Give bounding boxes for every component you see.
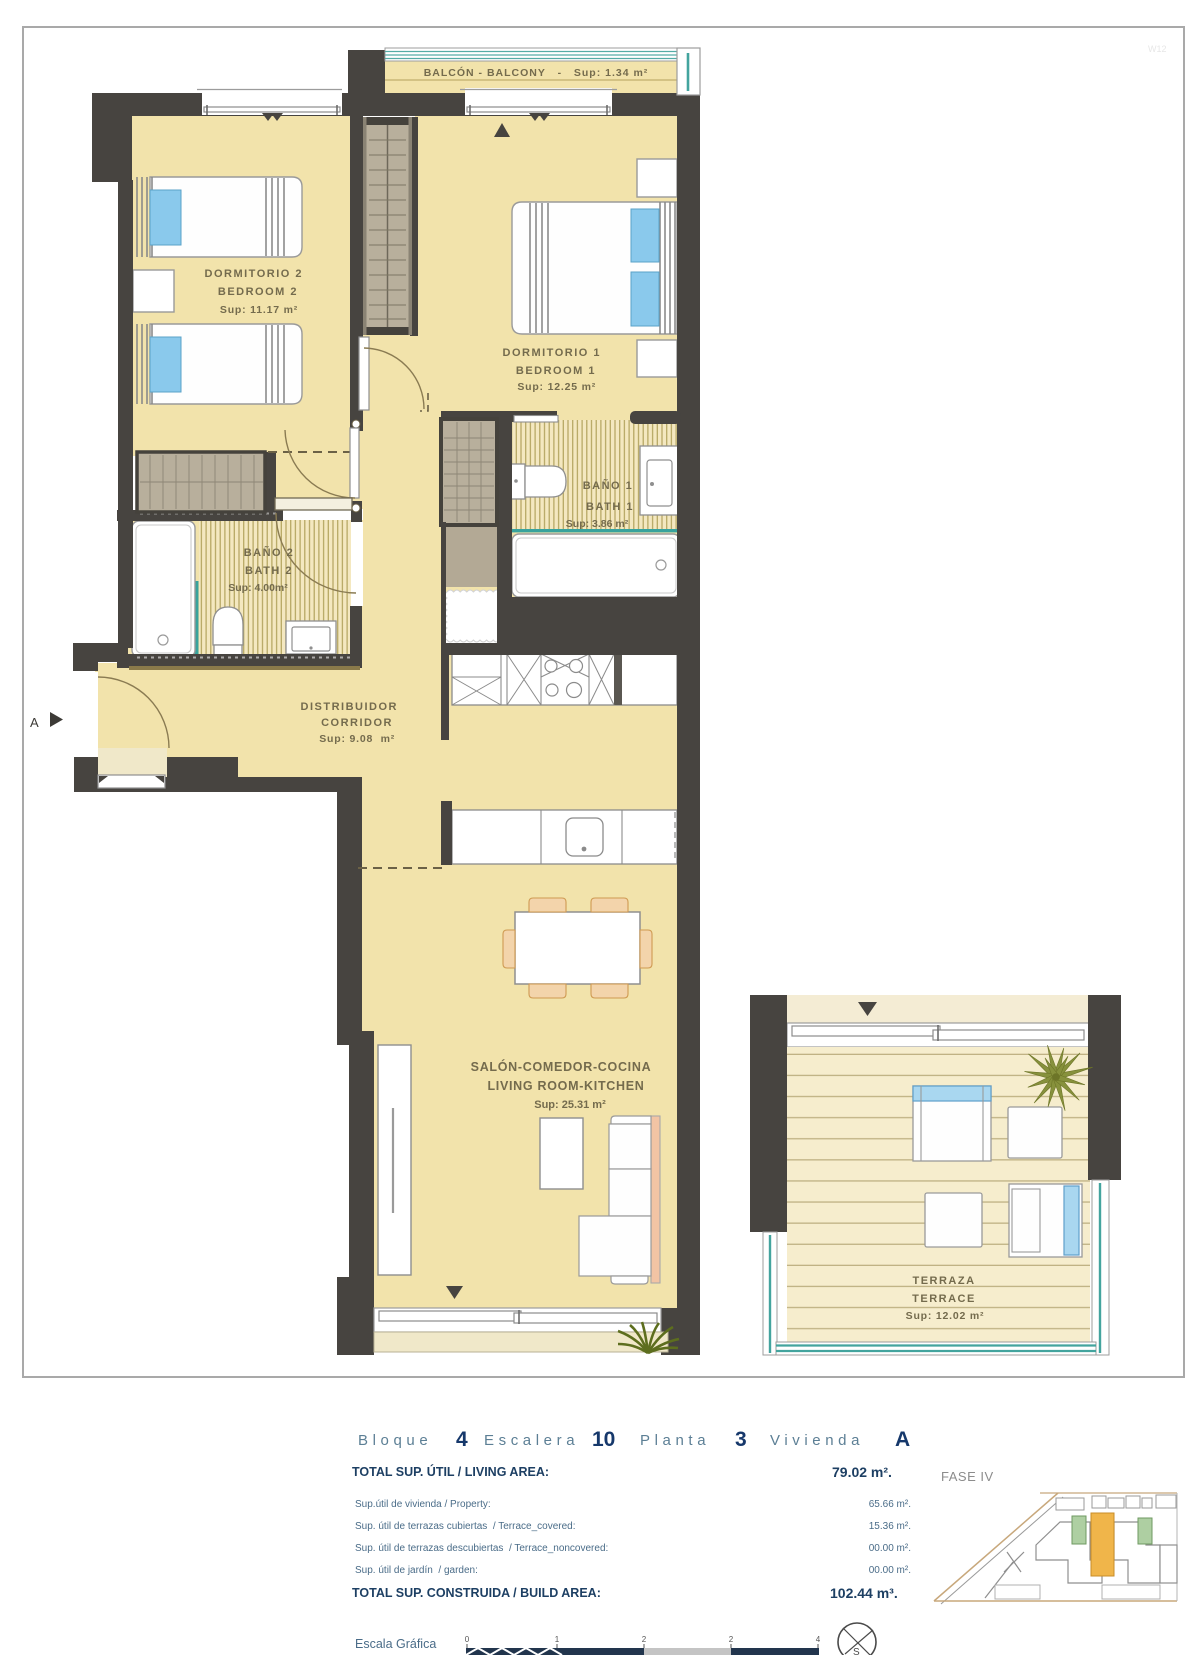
svg-text:BEDROOM 1: BEDROOM 1 [516, 365, 596, 377]
svg-text:2: 2 [642, 1635, 647, 1644]
svg-text:A: A [30, 715, 39, 730]
svg-text:DORMITORIO 1: DORMITORIO 1 [503, 347, 601, 359]
svg-text:00.00 m².: 00.00 m². [869, 1565, 911, 1576]
svg-text:BAÑO 1: BAÑO 1 [583, 479, 634, 492]
svg-text:Sup: 12.02 m²: Sup: 12.02 m² [906, 1310, 985, 1322]
svg-text:BATH 1: BATH 1 [586, 501, 634, 513]
svg-text:4: 4 [816, 1635, 821, 1644]
svg-text:BEDROOM 2: BEDROOM 2 [218, 286, 298, 298]
svg-text:Sup: 9.08 m²: Sup: 9.08 m² [319, 733, 395, 745]
svg-text:BATH 2: BATH 2 [245, 565, 293, 577]
svg-text:Vivienda: Vivienda [770, 1432, 864, 1449]
svg-text:Planta: Planta [640, 1432, 710, 1449]
svg-text:Sup. útil de jardín / garden:: Sup. útil de jardín / garden: [355, 1565, 478, 1576]
svg-text:BAÑO 2: BAÑO 2 [244, 546, 295, 559]
svg-text:FASE IV: FASE IV [941, 1469, 994, 1484]
svg-text:Sup. útil de terrazas cubierta: Sup. útil de terrazas cubiertas / Terrac… [355, 1521, 575, 1532]
svg-text:Sup: 11.17 m²: Sup: 11.17 m² [220, 304, 298, 316]
svg-text:SALÓN-COMEDOR-COCINA: SALÓN-COMEDOR-COCINA [471, 1059, 652, 1074]
svg-text:102.44 m³.: 102.44 m³. [830, 1585, 898, 1601]
svg-text:65.66 m².: 65.66 m². [869, 1499, 911, 1510]
svg-text:LIVING ROOM-KITCHEN: LIVING ROOM-KITCHEN [487, 1079, 644, 1093]
svg-text:DISTRIBUIDOR: DISTRIBUIDOR [301, 701, 398, 713]
svg-text:TOTAL SUP. ÚTIL / LIVING AREA:: TOTAL SUP. ÚTIL / LIVING AREA: [352, 1464, 549, 1479]
svg-text:DORMITORIO 2: DORMITORIO 2 [205, 268, 303, 280]
svg-text:W12: W12 [1148, 44, 1167, 54]
svg-text:Sup: 3.86 m²: Sup: 3.86 m² [566, 518, 629, 530]
svg-text:Sup: 25.31 m²: Sup: 25.31 m² [534, 1099, 606, 1111]
svg-text:Escalera: Escalera [484, 1432, 579, 1449]
svg-text:10: 10 [592, 1428, 615, 1451]
svg-text:00.00 m².: 00.00 m². [869, 1543, 911, 1554]
svg-text:TOTAL SUP. CONSTRUIDA / BUILD: TOTAL SUP. CONSTRUIDA / BUILD AREA: [352, 1586, 601, 1600]
svg-text:0: 0 [465, 1635, 470, 1644]
svg-text:4: 4 [456, 1428, 468, 1451]
svg-text:Sup: 12.25 m²: Sup: 12.25 m² [517, 381, 596, 393]
svg-text:79.02 m².: 79.02 m². [832, 1464, 892, 1480]
svg-text:Bloque: Bloque [358, 1432, 432, 1449]
svg-text:Sup: 4.00m²: Sup: 4.00m² [228, 582, 288, 594]
svg-text:Escala Gráfica: Escala Gráfica [355, 1637, 436, 1651]
svg-text:TERRAZA: TERRAZA [912, 1275, 975, 1287]
svg-text:1: 1 [555, 1635, 560, 1644]
svg-text:Sup. útil de terrazas descubie: Sup. útil de terrazas descubiertas / Ter… [355, 1543, 608, 1554]
svg-text:Sup.útil de vivienda / Propert: Sup.útil de vivienda / Property: [355, 1499, 491, 1510]
svg-text:S: S [853, 1647, 860, 1655]
svg-text:3: 3 [735, 1428, 747, 1451]
svg-text:CORRIDOR: CORRIDOR [321, 717, 393, 729]
svg-text:A: A [895, 1428, 910, 1451]
svg-text:15.36 m².: 15.36 m². [869, 1521, 911, 1532]
svg-text:2: 2 [729, 1635, 734, 1644]
svg-text:BALCÓN - BALCONY - Sup: 1.: BALCÓN - BALCONY - Sup: 1.34 m² [424, 66, 649, 79]
svg-text:TERRACE: TERRACE [912, 1293, 976, 1305]
